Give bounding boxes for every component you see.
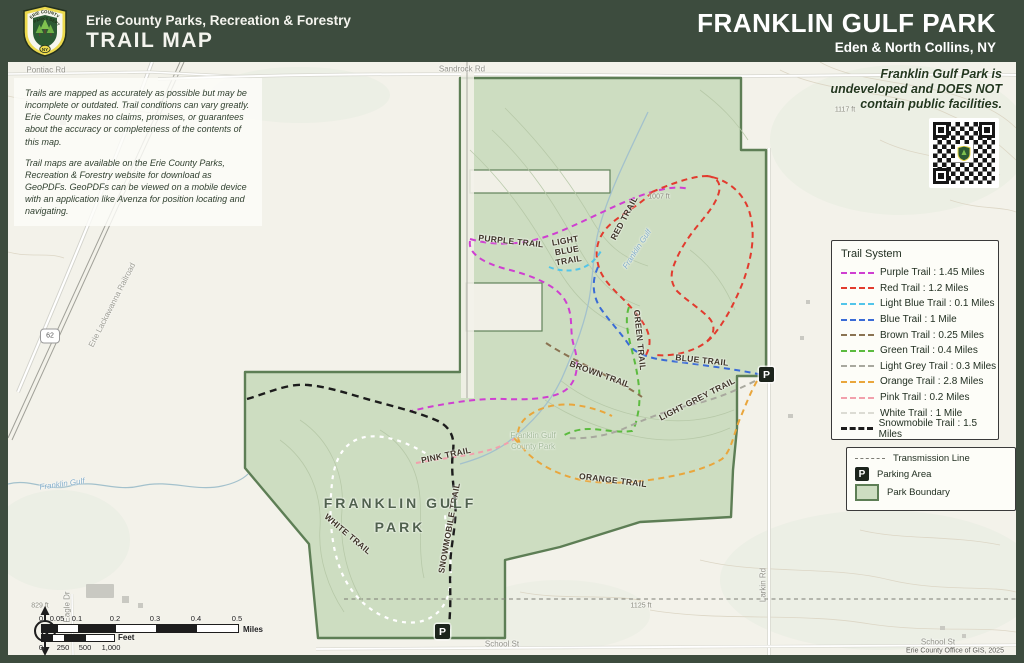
qr-finder-icon	[933, 122, 949, 138]
legend-row-light-grey: Light Grey Trail : 0.3 Miles	[841, 359, 998, 375]
miles-scale-bar	[41, 624, 239, 633]
parking-area-marker: P	[759, 367, 774, 382]
org-name: Erie County Parks, Recreation & Forestry	[86, 13, 351, 28]
trail-system-legend: Trail System Purple Trail : 1.45 Miles R…	[831, 240, 999, 440]
brown-dash-icon	[841, 334, 874, 336]
basemap-park-label-line1: Franklin Gulf	[498, 431, 568, 441]
school-st-label-2: School St	[921, 638, 955, 647]
school-st-label: School St	[485, 640, 519, 649]
miles-tick: 0.2	[110, 614, 120, 623]
basemap-park-label-line2: County Park	[498, 442, 568, 452]
feet-tick: 250	[57, 643, 70, 652]
white-dash-icon	[841, 412, 874, 414]
purple-dash-icon	[841, 272, 874, 274]
legend-title: Trail System	[841, 248, 998, 260]
disclaimer-paragraph-1: Trails are mapped as accurately as possi…	[25, 87, 251, 148]
disclaimer-paragraph-2: Trail maps are available on the Erie Cou…	[25, 157, 251, 218]
green-dash-icon	[841, 350, 874, 352]
snowmobile-dash-icon	[841, 427, 873, 430]
qr-finder-icon	[933, 168, 949, 184]
miles-tick: 0.4	[191, 614, 201, 623]
doc-type: TRAIL MAP	[86, 29, 213, 53]
legend-row-red: Red Trail : 1.2 Miles	[841, 281, 998, 297]
qr-pattern	[933, 122, 995, 184]
light-grey-dash-icon	[841, 365, 874, 367]
transmission-line-icon	[855, 458, 885, 459]
legend-row-brown: Brown Trail : 0.25 Miles	[841, 327, 998, 343]
feet-tick: 1,000	[102, 643, 121, 652]
park-location: Eden & North Collins, NY	[835, 40, 996, 55]
blue-dash-icon	[841, 319, 874, 321]
route-62-shield: 62	[40, 329, 60, 344]
attribution: Erie County Office of GIS, 2025	[906, 648, 1004, 655]
logo-state-text: NY	[42, 47, 48, 52]
parking-icon: P	[855, 467, 869, 481]
trail-map-page: ERIE COUNTY PARKS DEPT NY Erie County Pa…	[0, 0, 1024, 663]
pontiac-rd-label: Pontiac Rd	[26, 66, 65, 75]
legend-row-snowmobile: Snowmobile Trail : 1.5 Miles	[841, 421, 998, 437]
qr-center-logo-icon	[955, 144, 973, 162]
miles-tick: 0.05	[50, 614, 65, 623]
red-dash-icon	[841, 287, 874, 289]
elevation-label-1125: 1125 ft	[631, 603, 652, 610]
legend-row-blue: Blue Trail : 1 Mile	[841, 312, 998, 328]
miles-tick: 0.3	[150, 614, 160, 623]
undeveloped-note: Franklin Gulf Park is undeveloped and DO…	[818, 67, 1002, 112]
miles-tick: 0.5	[232, 614, 242, 623]
qr-code	[929, 118, 999, 188]
park-name-label-line1: FRANKLIN GULF	[324, 495, 477, 511]
legend-row-transmission: Transmission Line	[855, 453, 1015, 464]
parking-area-marker: P	[435, 624, 450, 639]
elevation-label-1117: 1117 ft	[835, 107, 855, 114]
feet-tick: 500	[79, 643, 92, 652]
legend-row-parking: PParking Area	[855, 467, 1015, 481]
miles-tick: 0.1	[72, 614, 82, 623]
miles-unit-label: Miles	[243, 625, 263, 634]
qr-finder-icon	[979, 122, 995, 138]
feet-tick: 0	[39, 643, 43, 652]
park-name-label-line2: PARK	[375, 519, 426, 535]
legend-row-orange: Orange Trail : 2.8 Miles	[841, 374, 998, 390]
larkin-rd-label: Larkin Rd	[759, 568, 768, 602]
legend-row-green: Green Trail : 0.4 Miles	[841, 343, 998, 359]
legend-row-boundary: Park Boundary	[855, 484, 1015, 501]
symbols-legend: Transmission Line PParking Area Park Bou…	[846, 447, 1016, 511]
orange-dash-icon	[841, 381, 874, 383]
page-title: FRANKLIN GULF PARK	[697, 8, 996, 39]
legend-row-pink: Pink Trail : 0.2 Miles	[841, 390, 998, 406]
feet-scale-bar	[41, 634, 115, 642]
park-boundary-swatch	[855, 484, 879, 501]
light-blue-dash-icon	[841, 303, 874, 305]
disclaimer-box: Trails are mapped as accurately as possi…	[14, 78, 262, 226]
pink-dash-icon	[841, 397, 874, 399]
miles-tick: 0	[39, 614, 43, 623]
sandrock-rd-label: Sandrock Rd	[439, 65, 485, 74]
feet-unit-label: Feet	[118, 633, 134, 642]
parks-logo: ERIE COUNTY PARKS DEPT NY	[21, 5, 69, 57]
elevation-label-1007: 1007 ft	[648, 194, 669, 201]
legend-row-light-blue: Light Blue Trail : 0.1 Miles	[841, 296, 998, 312]
legend-row-purple: Purple Trail : 1.45 Miles	[841, 265, 998, 281]
